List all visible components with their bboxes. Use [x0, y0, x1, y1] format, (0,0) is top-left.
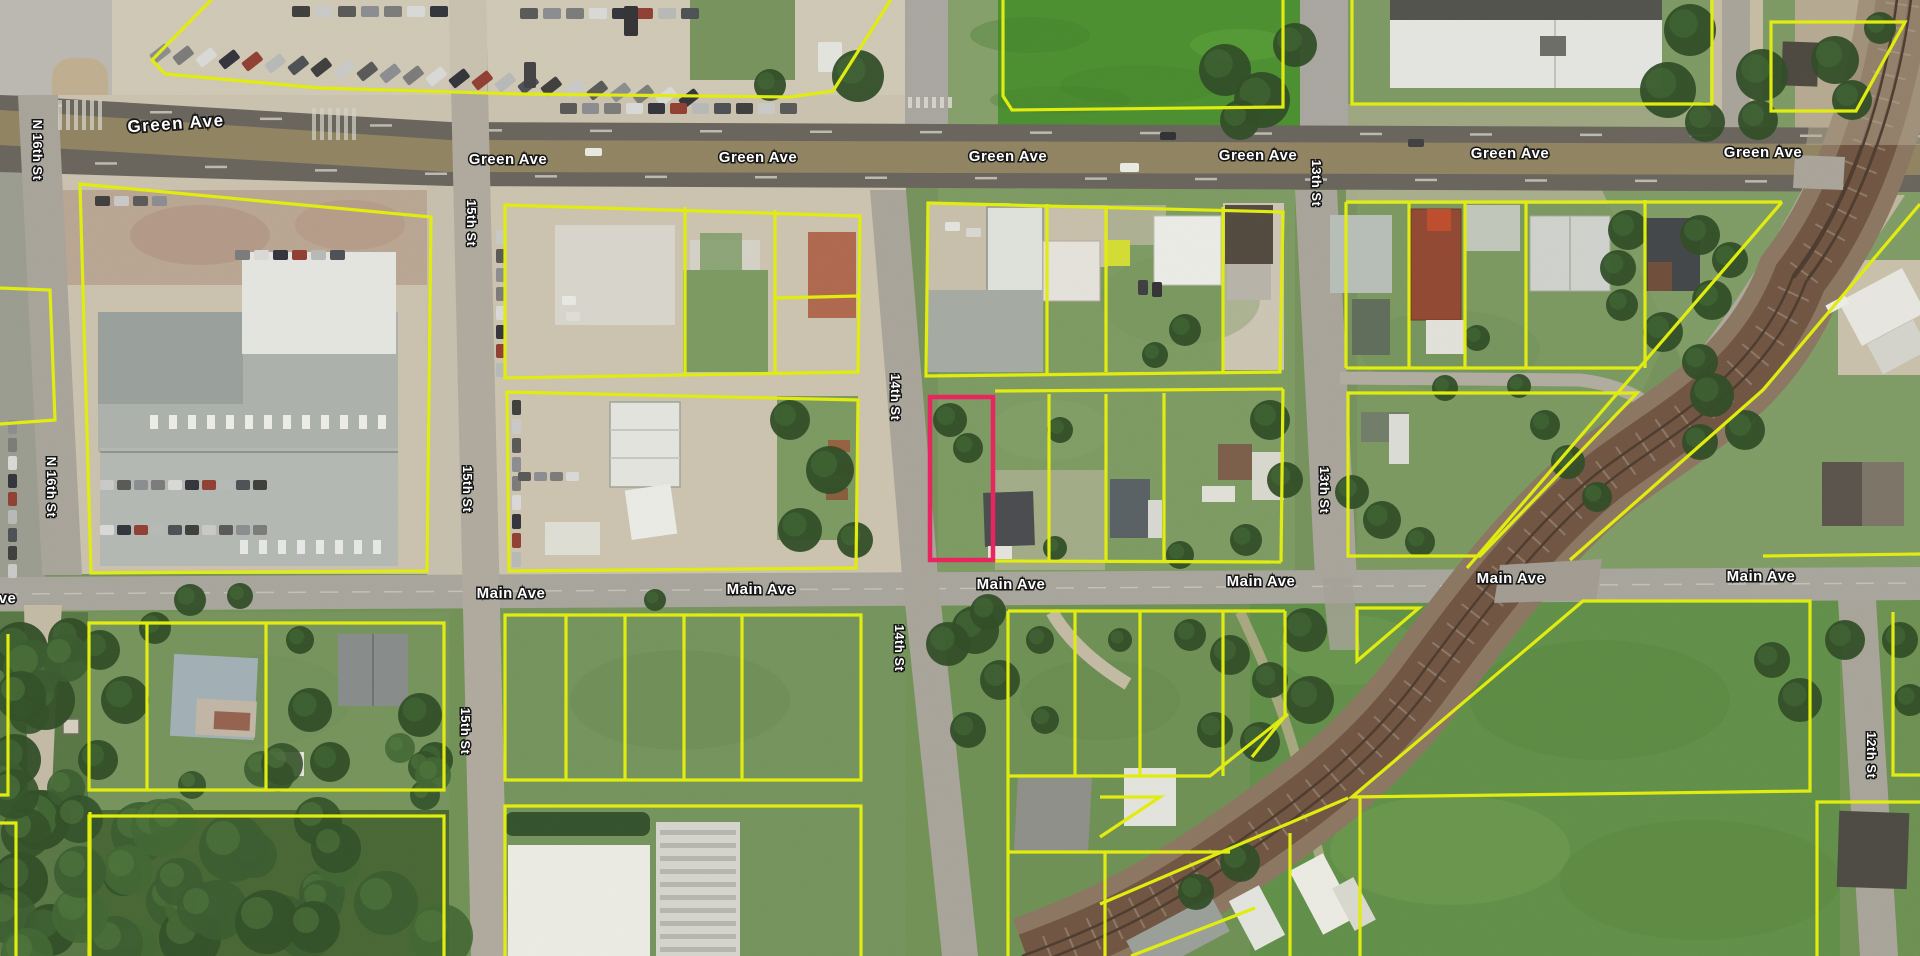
svg-text:12th St: 12th St: [1864, 732, 1879, 779]
svg-text:13th St: 13th St: [1309, 160, 1324, 207]
svg-text:Green Ave: Green Ave: [1724, 144, 1802, 161]
svg-text:Green Ave: Green Ave: [1219, 147, 1297, 164]
svg-text:14th St: 14th St: [892, 625, 907, 672]
svg-text:Main Ave: Main Ave: [1227, 573, 1296, 590]
svg-text:15th St: 15th St: [458, 708, 473, 755]
svg-text:Main Ave: Main Ave: [0, 590, 16, 607]
svg-text:Main Ave: Main Ave: [477, 585, 546, 602]
svg-text:Green Ave: Green Ave: [469, 151, 547, 168]
svg-text:Main Ave: Main Ave: [1477, 570, 1546, 587]
svg-text:Green Ave: Green Ave: [719, 149, 797, 166]
svg-text:13th St: 13th St: [1317, 467, 1332, 514]
svg-text:Main Ave: Main Ave: [727, 581, 796, 598]
svg-text:Main Ave: Main Ave: [977, 576, 1046, 593]
svg-text:N 16th St: N 16th St: [30, 120, 45, 181]
svg-text:Green Ave: Green Ave: [969, 148, 1047, 165]
svg-text:15th St: 15th St: [460, 466, 475, 513]
svg-text:Main Ave: Main Ave: [1727, 568, 1796, 585]
svg-text:15th St: 15th St: [464, 200, 479, 247]
svg-text:N 16th St: N 16th St: [44, 457, 59, 518]
svg-text:14th St: 14th St: [888, 374, 903, 421]
svg-text:Green Ave: Green Ave: [1471, 145, 1549, 162]
